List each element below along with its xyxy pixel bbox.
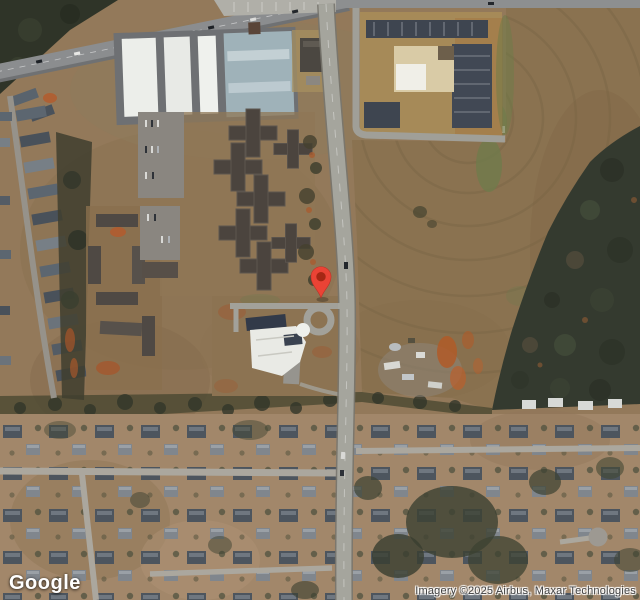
cul-de-sac bbox=[589, 528, 608, 547]
map-viewport[interactable]: Google Imagery ©2025 Airbus, Maxar Techn… bbox=[0, 0, 640, 600]
imagery-attribution: Imagery ©2025 Airbus, Maxar Technologies bbox=[415, 585, 636, 597]
grass-patch bbox=[476, 138, 502, 192]
parking-lot bbox=[140, 206, 180, 260]
residential-subdivision bbox=[0, 398, 640, 600]
satellite-imagery[interactable] bbox=[0, 0, 640, 600]
industrial-warehouse bbox=[113, 21, 298, 125]
commercial-building bbox=[356, 8, 514, 139]
school-zone bbox=[212, 294, 352, 396]
google-logo[interactable]: Google bbox=[9, 572, 81, 595]
apartment-campus bbox=[138, 109, 322, 296]
parking-lot bbox=[138, 112, 184, 198]
